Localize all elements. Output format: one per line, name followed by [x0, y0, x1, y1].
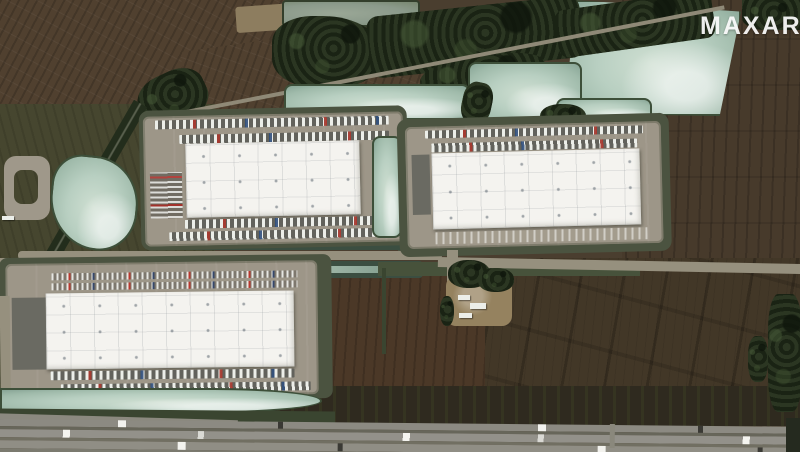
warehouse-south	[0, 248, 335, 404]
warehouse-s-west-road	[0, 296, 11, 400]
farmstead-shed-1	[458, 295, 470, 300]
highway-median-crossover	[610, 424, 615, 448]
maxar-watermark-text: MAXAR	[700, 12, 800, 40]
farmstead-shed-2	[470, 303, 486, 309]
white-truck-west	[2, 216, 14, 220]
tree-strip-east-edge	[768, 294, 800, 412]
farmstead-tree-2	[478, 268, 514, 292]
tree-clump-east	[748, 336, 768, 382]
overpass-shadow	[786, 418, 800, 452]
warehouse-northeast	[396, 91, 672, 260]
warehouse-nw-roof	[185, 140, 361, 218]
warehouse-ne-west-dock	[411, 155, 430, 215]
warehouse-s-west-dock	[12, 297, 47, 369]
warehouse-s-roof	[46, 290, 295, 369]
highway	[0, 410, 800, 452]
warehouse-ne-roof	[431, 148, 641, 229]
maxar-watermark: MAXAR	[700, 12, 800, 41]
cul-de-sac-island	[14, 170, 38, 204]
hedge-line	[382, 268, 386, 354]
farmstead-shed-3	[459, 313, 472, 318]
satellite-image: MAXAR	[0, 0, 800, 452]
warehouse-nw-car-lot	[150, 172, 183, 219]
warehouse-northwest	[139, 103, 412, 253]
farmstead-tree-3	[440, 296, 454, 326]
